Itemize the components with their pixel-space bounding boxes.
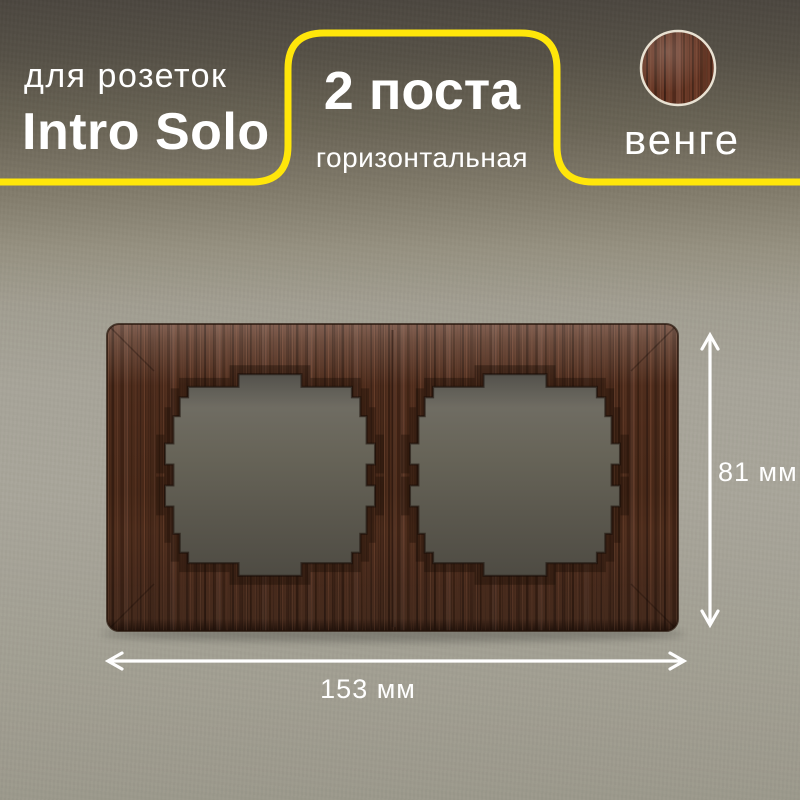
product-line-subtitle: для розеток xyxy=(24,59,227,95)
product-line-title: Intro Solo xyxy=(22,105,270,160)
height-dimension-label: 81 мм xyxy=(718,458,798,486)
finish-label: венге xyxy=(624,118,740,162)
width-dimension-label: 153 мм xyxy=(320,675,416,703)
frame-opening-left xyxy=(160,364,386,576)
width-arrow-icon xyxy=(108,653,684,669)
configuration-subtitle: горизонтальная xyxy=(316,143,528,172)
product-showcase-image: для розеток Intro Solo 2 поста горизонта… xyxy=(0,0,800,800)
frame-opening-right xyxy=(405,364,631,576)
socket-frame-product xyxy=(101,324,685,642)
finish-swatch-icon xyxy=(641,31,715,105)
height-arrow-icon xyxy=(702,335,718,625)
configuration-title: 2 поста xyxy=(324,63,520,120)
